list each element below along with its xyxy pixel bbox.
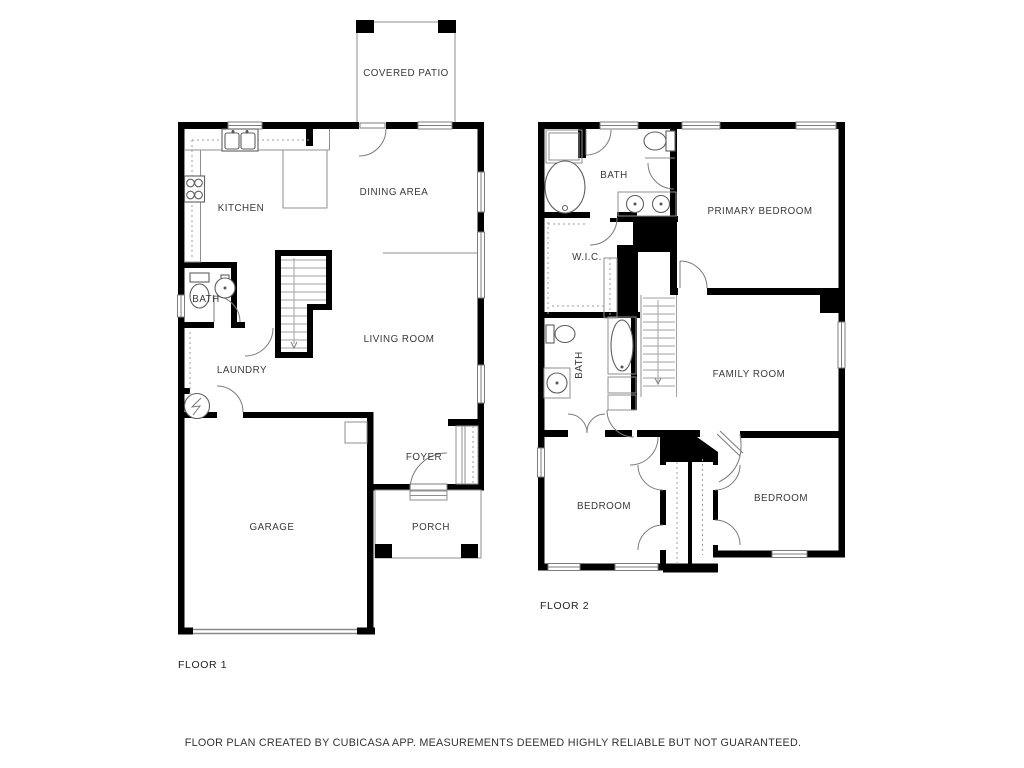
footer-disclaimer: FLOOR PLAN CREATED BY CUBICASA APP. MEAS… [185,737,802,749]
floor2-plan: BATH PRIMARY BEDROOM W.I.C. FAMILY ROOM … [538,122,846,612]
toilet-bowl [644,132,666,150]
porch-label: PORCH [412,522,450,533]
sink-basin [241,133,255,149]
foyer-label: FOYER [406,452,442,463]
bath2-label: BATH [574,351,585,378]
kitchen-sink [222,129,258,151]
closet-door-gap [659,525,667,550]
drain-dot [660,203,663,206]
covered-patio-label: COVERED PATIO [363,68,449,79]
garage-overhead-door [193,628,357,635]
faucet-dot [246,130,249,133]
double-vanity [627,196,670,213]
primary-bath-toilet [644,131,675,151]
staircase-floor2 [643,295,677,397]
closet-door-gap [712,465,719,490]
dining-area-label: DINING AREA [360,187,429,198]
tub-oval [611,320,633,371]
patio-pillar [356,20,374,33]
patio-pillar [438,20,456,33]
closet-door-gap [659,465,667,490]
water-heater [185,394,210,419]
drain-dot [224,287,227,290]
sink-basin [225,133,239,149]
faucet-dot [232,130,235,133]
burner [187,179,195,187]
hall-bath-toilet [546,325,575,343]
laundry-label: LAUNDRY [217,365,267,376]
kitchen-label: KITCHEN [218,203,265,214]
floor-plan-page: COVERED PATIO KITCHEN DINING AREA BATH L… [0,0,1024,768]
primary-bedroom-label: PRIMARY BEDROOM [707,206,812,217]
staircase [281,258,326,348]
laundry-door-gap [245,322,273,328]
stairs-steps [643,298,675,386]
tub-drain [621,366,624,369]
family-room-label: FAMILY ROOM [713,369,786,380]
floor1-title: FLOOR 1 [178,659,227,671]
living-room-label: LIVING ROOM [364,334,435,345]
tub-faucet [563,206,568,211]
stove [185,176,205,202]
porch-pillar [375,544,392,558]
floor1-thin-outlines [185,129,482,558]
patio-door-leaf [360,123,385,128]
floor2-title: FLOOR 2 [540,600,589,612]
bath-label: BATH [192,294,219,305]
drain-dot [556,382,559,385]
toilet-tank [546,325,554,343]
stairs-steps [281,258,326,348]
burner [187,191,195,199]
porch-pillar [461,544,478,558]
bedroom-right-label: BEDROOM [754,493,808,504]
toilet-bowl [555,326,575,343]
garage-door-gap [217,412,243,418]
floor-plan-canvas: COVERED PATIO KITCHEN DINING AREA BATH L… [0,0,1024,768]
primary-door-gap [678,288,707,295]
toilet-tank [666,131,675,151]
drain-dot [634,203,637,206]
primary-bath-tub [545,161,585,213]
burner [195,179,203,187]
toilet-tank [190,273,209,282]
bath-label: BATH [600,170,627,181]
wic-label: W.I.C. [572,252,602,263]
wic-door-gap [590,212,617,218]
closet-door-gap [712,520,719,545]
hall-bath-tub [611,320,633,371]
garage-label: GARAGE [250,522,295,533]
bedroom-left-label: BEDROOM [577,501,631,512]
floor1-plan: COVERED PATIO KITCHEN DINING AREA BATH L… [178,20,485,671]
burner [195,191,203,199]
hall-bath-sink [547,373,567,393]
